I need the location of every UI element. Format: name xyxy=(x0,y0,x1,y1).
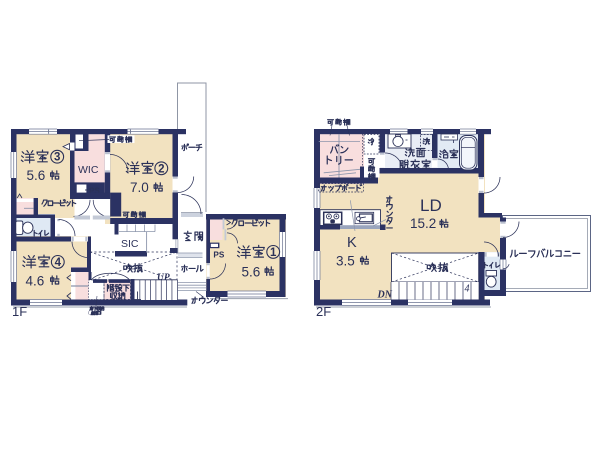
svg-text:3: 3 xyxy=(54,152,60,164)
svg-text:2: 2 xyxy=(158,163,164,175)
svg-text:5.6: 5.6 xyxy=(27,168,46,183)
svg-text:SIC: SIC xyxy=(121,238,139,250)
svg-text:4: 4 xyxy=(465,284,470,295)
svg-text:WIC: WIC xyxy=(78,164,99,176)
svg-text:LD: LD xyxy=(420,196,442,215)
svg-text:2F: 2F xyxy=(316,304,331,319)
svg-text:DN: DN xyxy=(377,290,393,301)
svg-text:PS: PS xyxy=(213,250,224,259)
svg-text:3.5: 3.5 xyxy=(336,254,355,269)
svg-text:K: K xyxy=(347,235,357,251)
svg-text:5.6: 5.6 xyxy=(242,265,261,280)
svg-text:1F: 1F xyxy=(12,304,27,319)
svg-text:7.0: 7.0 xyxy=(130,180,149,195)
svg-text:4: 4 xyxy=(55,257,62,269)
svg-text:4.6: 4.6 xyxy=(26,274,45,289)
svg-text:15.2: 15.2 xyxy=(410,216,436,231)
svg-text:1: 1 xyxy=(270,247,277,259)
